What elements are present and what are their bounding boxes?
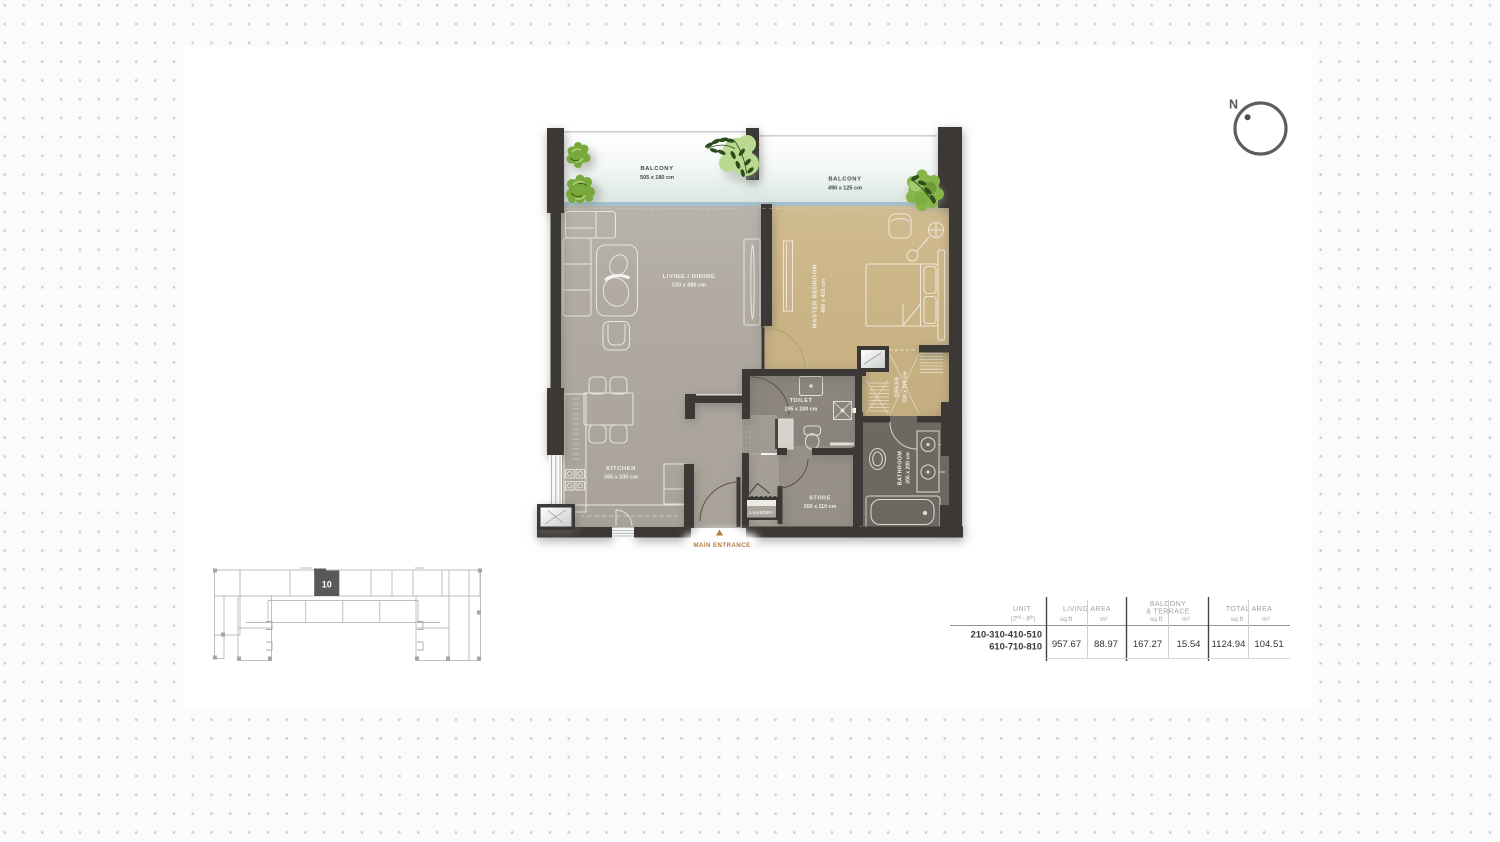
svg-text:TOILET: TOILET: [790, 398, 813, 404]
svg-text:490 x 125 cm: 490 x 125 cm: [828, 186, 862, 192]
svg-text:460 x 415 cm: 460 x 415 cm: [821, 279, 827, 313]
svg-text:sq.ft: sq.ft: [1060, 616, 1073, 623]
svg-text:10: 10: [322, 580, 332, 590]
svg-text:205 x 200 cm: 205 x 200 cm: [906, 452, 912, 484]
svg-text:1124.94: 1124.94: [1212, 639, 1247, 650]
svg-text:210-310-410-510: 210-310-410-510: [971, 630, 1042, 640]
svg-text:sq.ft: sq.ft: [1150, 616, 1163, 623]
svg-text:m²: m²: [1100, 616, 1108, 623]
svg-text:957.67: 957.67: [1052, 639, 1081, 650]
svg-text:533 x 480 cm: 533 x 480 cm: [672, 283, 706, 289]
svg-text:BALCONY: BALCONY: [640, 166, 673, 172]
svg-text:STORE: STORE: [809, 496, 831, 502]
svg-text:355 x 330 cm: 355 x 330 cm: [604, 475, 638, 481]
svg-text:DRESS: DRESS: [895, 377, 901, 398]
svg-text:15.54: 15.54: [1176, 639, 1201, 650]
svg-text:KITCHEN: KITCHEN: [606, 466, 636, 472]
svg-text:505 x 180 cm: 505 x 180 cm: [640, 175, 674, 181]
svg-text:MASTER BEDROOM: MASTER BEDROOM: [813, 264, 819, 328]
svg-text:295 x 200 cm: 295 x 200 cm: [785, 407, 818, 413]
svg-text:LIVING / DINING: LIVING / DINING: [663, 274, 716, 280]
svg-text:167.27: 167.27: [1133, 639, 1162, 650]
svg-text:m²: m²: [1262, 616, 1270, 623]
svg-text:BALCONY: BALCONY: [828, 177, 861, 183]
svg-text:104.51: 104.51: [1254, 639, 1283, 650]
svg-text:N: N: [1229, 98, 1238, 112]
svg-text:LAUNDRY: LAUNDRY: [749, 510, 773, 515]
svg-text:UNIT: UNIT: [1013, 606, 1031, 613]
svg-text:m²: m²: [1182, 616, 1190, 623]
svg-text:MAIN ENTRANCE: MAIN ENTRANCE: [693, 542, 750, 549]
svg-text:sq.ft: sq.ft: [1231, 616, 1244, 623]
svg-text:230 x 175 cm: 230 x 175 cm: [903, 371, 909, 403]
svg-text:200 x 110 cm: 200 x 110 cm: [804, 504, 837, 510]
svg-text:BATHROOM: BATHROOM: [898, 451, 904, 486]
svg-text:610-710-810: 610-710-810: [989, 642, 1042, 652]
svg-text:88.97: 88.97: [1094, 639, 1118, 650]
